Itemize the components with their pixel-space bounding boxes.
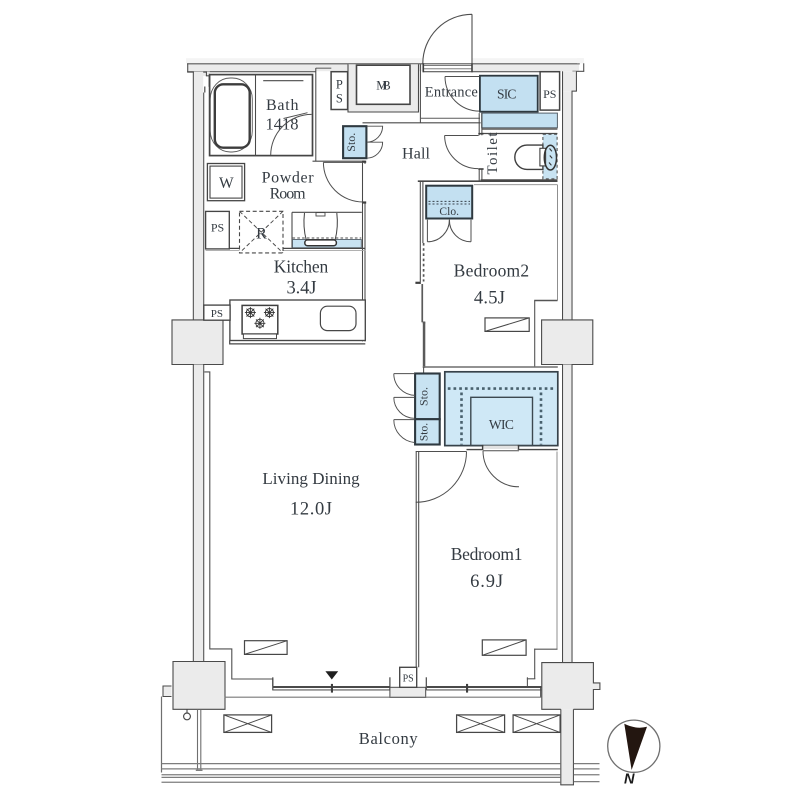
svg-text:Bedroom1: Bedroom1: [451, 544, 523, 564]
svg-text:W: W: [219, 175, 234, 192]
svg-text:Hall: Hall: [402, 146, 431, 163]
svg-text:SIC: SIC: [497, 87, 517, 102]
svg-text:Kitchen: Kitchen: [274, 257, 329, 277]
svg-text:PS: PS: [211, 221, 224, 235]
svg-text:12.0J: 12.0J: [290, 500, 332, 520]
svg-text:4.5J: 4.5J: [474, 288, 505, 308]
svg-text:6.9J: 6.9J: [470, 572, 503, 592]
svg-text:PS: PS: [403, 674, 414, 685]
svg-text:PS: PS: [211, 308, 223, 320]
svg-text:3.4J: 3.4J: [287, 278, 317, 298]
svg-text:Entrance: Entrance: [425, 85, 478, 101]
svg-text:S: S: [336, 92, 343, 106]
svg-text:Living Dining: Living Dining: [262, 469, 360, 488]
svg-text:Powder: Powder: [262, 170, 315, 187]
svg-text:MB: MB: [376, 79, 391, 93]
svg-text:PS: PS: [543, 87, 556, 101]
svg-text:Sto.: Sto.: [419, 423, 431, 441]
svg-text:P: P: [336, 78, 343, 92]
svg-text:Sto.: Sto.: [417, 387, 431, 406]
svg-text:Room: Room: [270, 186, 307, 203]
svg-text:Balcony: Balcony: [359, 729, 419, 748]
svg-text:Sto.: Sto.: [344, 133, 358, 152]
svg-text:Bath: Bath: [266, 97, 299, 114]
svg-text:Bedroom2: Bedroom2: [454, 261, 530, 281]
svg-text:WIC: WIC: [489, 417, 514, 432]
svg-text:1418: 1418: [266, 115, 299, 134]
svg-text:R: R: [256, 226, 267, 243]
svg-text:N: N: [624, 771, 635, 787]
svg-text:Clo.: Clo.: [439, 206, 459, 218]
